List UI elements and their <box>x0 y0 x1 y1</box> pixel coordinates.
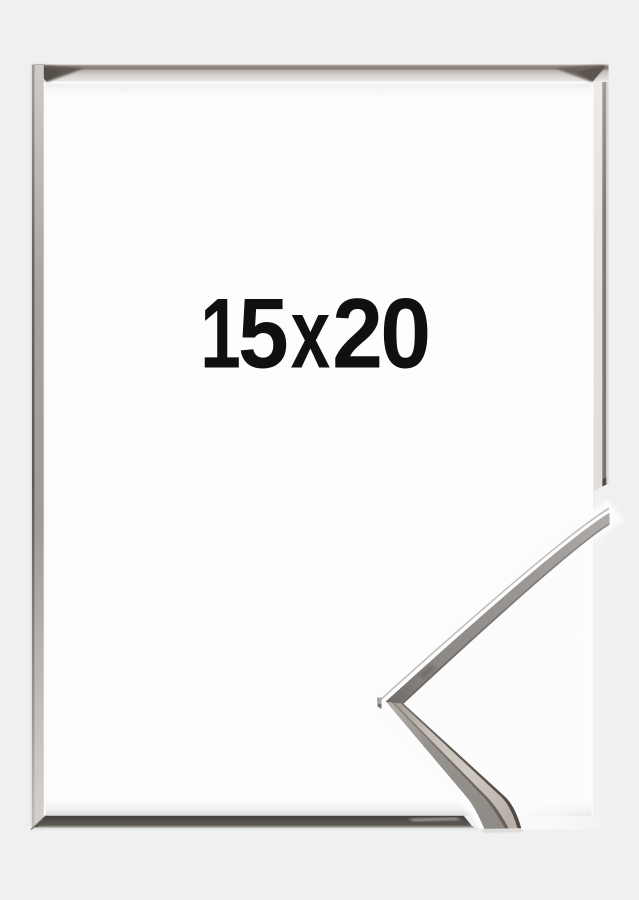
svg-text:1: 1 <box>200 279 241 389</box>
svg-text:2: 2 <box>332 279 383 389</box>
svg-text:0: 0 <box>380 279 431 389</box>
svg-text:x: x <box>291 279 331 389</box>
svg-text:5: 5 <box>238 279 289 389</box>
